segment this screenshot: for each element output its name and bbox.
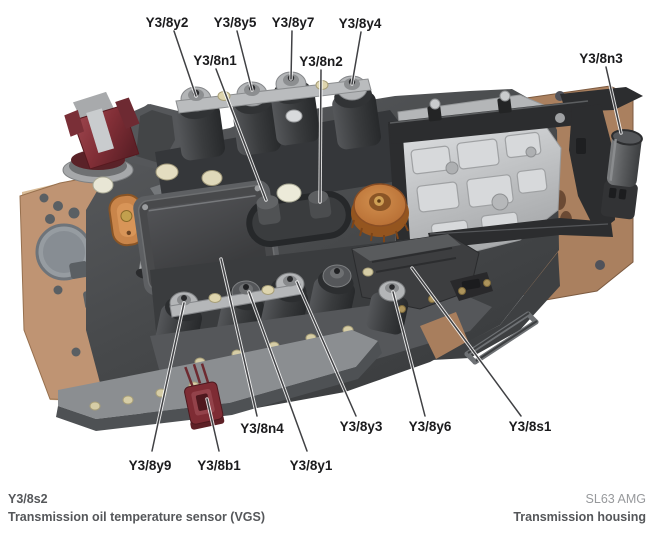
leader-n2: [320, 70, 321, 202]
callout-label-n4: Y3/8n4: [240, 421, 284, 436]
page: { "figure": { "callouts": { "y2": "Y3/8y…: [0, 0, 653, 544]
callout-label-y4: Y3/8y4: [339, 16, 382, 31]
callout-label-y5: Y3/8y5: [214, 15, 257, 30]
callout-label-y9: Y3/8y9: [129, 458, 172, 473]
leader-y5: [237, 31, 252, 90]
caption-vehicle: SL63 AMG: [586, 492, 646, 506]
callout-label-n2: Y3/8n2: [299, 54, 343, 69]
callout-label-y6: Y3/8y6: [409, 419, 452, 434]
valve-body-diagram: Y3/8y2 Y3/8y5 Y3/8y7 Y3/8y4 Y3/8n1 Y3/8n…: [0, 0, 653, 544]
caption-block: Y3/8s2 Transmission oil temperature sens…: [8, 492, 646, 524]
leader-y7: [291, 31, 292, 79]
maroon-connector: [62, 89, 143, 183]
callout-label-n1: Y3/8n1: [193, 53, 237, 68]
callout-label-n3: Y3/8n3: [579, 51, 623, 66]
callout-label-y2: Y3/8y2: [146, 15, 189, 30]
callout-label-s1: Y3/8s1: [509, 419, 552, 434]
callout-label-y1: Y3/8y1: [290, 458, 333, 473]
solenoid-bank-top: [174, 72, 382, 161]
caption-part-code: Y3/8s2: [8, 492, 48, 506]
caption-location: Transmission housing: [513, 510, 646, 524]
callout-label-b1: Y3/8b1: [197, 458, 241, 473]
caption-part-name: Transmission oil temperature sensor (VGS…: [8, 510, 265, 524]
callout-label-y3: Y3/8y3: [340, 419, 383, 434]
callout-label-y7: Y3/8y7: [272, 15, 315, 30]
